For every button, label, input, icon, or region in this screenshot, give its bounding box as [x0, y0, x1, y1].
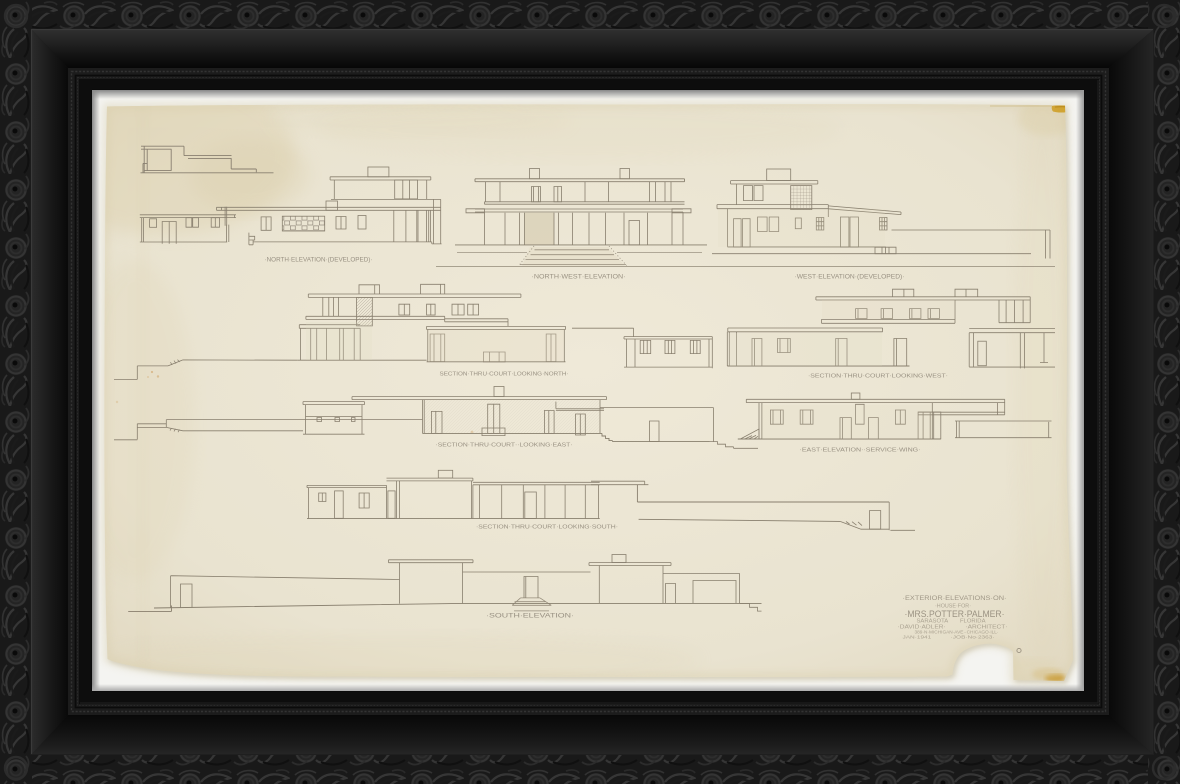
- svg-text:JAN·1941 ·JOB·No·2363·: JAN·1941 ·JOB·No·2363·: [903, 635, 995, 640]
- svg-text:·SECTION·THRU·COURT·LOOKING·SO: ·SECTION·THRU·COURT·LOOKING·SOUTH·: [476, 525, 618, 531]
- svg-text:·SECTION·THRU·COURT··LOOKING·E: ·SECTION·THRU·COURT··LOOKING·EAST·: [436, 443, 573, 449]
- svg-text:·NORTH·ELEVATION·(DEVELOPED)·: ·NORTH·ELEVATION·(DEVELOPED)·: [265, 258, 373, 264]
- svg-text:·EXTERIOR·ELEVATIONS·ON·: ·EXTERIOR·ELEVATIONS·ON·: [903, 595, 1007, 602]
- svg-text:·SECTION·THRU·COURT·LOOKING·WE: ·SECTION·THRU·COURT·LOOKING·WEST·: [808, 374, 948, 380]
- svg-text:·WEST·ELEVATION·(DEVELOPED)·: ·WEST·ELEVATION·(DEVELOPED)·: [795, 275, 905, 281]
- svg-text:·EAST·ELEVATION··SERVICE·WING·: ·EAST·ELEVATION··SERVICE·WING·: [800, 448, 921, 454]
- svg-text:SECTION·THRU·COURT·LOOKING·NOR: SECTION·THRU·COURT·LOOKING·NORTH·: [440, 372, 569, 378]
- svg-text:·SOUTH·ELEVATION·: ·SOUTH·ELEVATION·: [486, 613, 574, 620]
- svg-text:·NORTH·WEST·ELEVATION·: ·NORTH·WEST·ELEVATION·: [532, 274, 626, 281]
